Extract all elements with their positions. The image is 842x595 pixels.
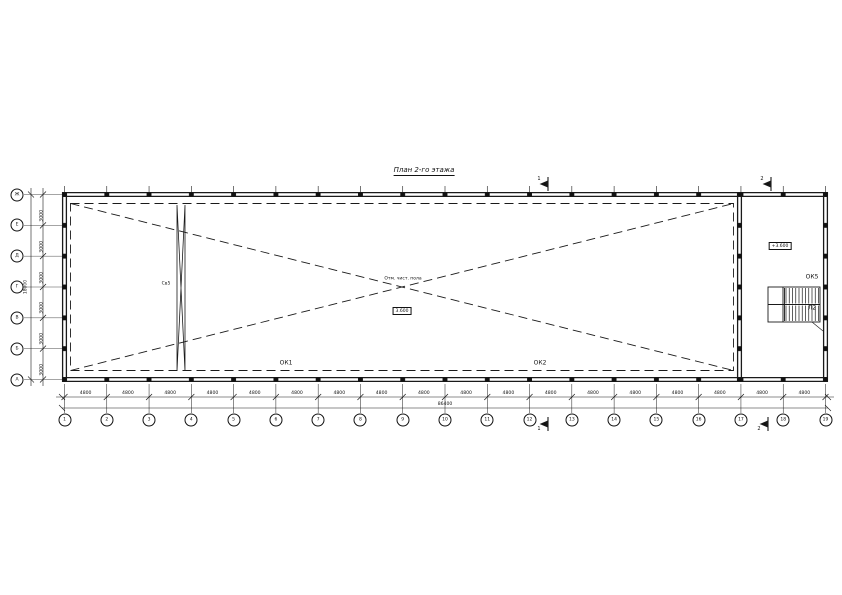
vertical-bracing bbox=[177, 205, 185, 371]
axis-bubble: А bbox=[11, 373, 24, 386]
floor-plan-sheet: План 2-го этажа ОК1 ОК2 ОК5 Л2 Св5 Отм. … bbox=[0, 0, 842, 595]
axis-bubble: 3 bbox=[143, 414, 156, 427]
axis-bubble: 5 bbox=[227, 414, 240, 427]
section-2-bottom-label: 2 bbox=[757, 426, 760, 432]
column-mark bbox=[654, 192, 658, 196]
column-mark bbox=[189, 192, 193, 196]
axis-bubble: Ж bbox=[11, 188, 24, 201]
center-note: Отм. чист. пола bbox=[384, 277, 421, 282]
bay-dim-label: 4800 bbox=[587, 391, 599, 396]
bay-dim-label: 4800 bbox=[418, 391, 430, 396]
column-mark bbox=[485, 192, 489, 196]
bay-dim-label: 4800 bbox=[80, 391, 92, 396]
bay-dim-label: 4800 bbox=[122, 391, 134, 396]
column-mark bbox=[737, 285, 741, 289]
bay-dim-label: 3000 bbox=[40, 364, 45, 376]
axis-bubble: 9 bbox=[396, 414, 409, 427]
axis-bubble: Г bbox=[11, 281, 24, 294]
bay-dim-label: 4800 bbox=[799, 391, 811, 396]
column-mark bbox=[316, 377, 320, 381]
column-mark bbox=[485, 377, 489, 381]
column-mark bbox=[316, 192, 320, 196]
column-mark bbox=[823, 316, 827, 320]
bay-dim-label: 4800 bbox=[756, 391, 768, 396]
column-mark bbox=[654, 377, 658, 381]
column-mark bbox=[696, 377, 700, 381]
axis-bubble: 17 bbox=[734, 414, 747, 427]
bay-dim-label: 3000 bbox=[40, 272, 45, 284]
stair-level-mark: +3.600 bbox=[769, 242, 792, 250]
column-mark bbox=[443, 192, 447, 196]
section-1-top-label: 1 bbox=[537, 176, 540, 182]
generated-linework bbox=[24, 186, 829, 413]
axis-bubble: 1 bbox=[58, 414, 71, 427]
column-mark bbox=[189, 377, 193, 381]
axis-bubble: 18 bbox=[777, 414, 790, 427]
axis-bubble: 4 bbox=[185, 414, 198, 427]
column-mark bbox=[443, 377, 447, 381]
column-mark bbox=[62, 377, 66, 381]
column-mark bbox=[527, 377, 531, 381]
section-marks bbox=[541, 177, 771, 431]
column-mark bbox=[737, 192, 741, 196]
axis-bubble: В bbox=[11, 311, 24, 324]
column-mark bbox=[570, 192, 574, 196]
column-mark bbox=[274, 377, 278, 381]
bay-dim-label: 4800 bbox=[164, 391, 176, 396]
column-mark bbox=[62, 346, 66, 350]
column-mark bbox=[570, 377, 574, 381]
column-mark bbox=[612, 192, 616, 196]
bay-dim-label: 4800 bbox=[545, 391, 557, 396]
axis-bubble: 10 bbox=[439, 414, 452, 427]
column-mark bbox=[823, 346, 827, 350]
stair-label: Л2 bbox=[808, 305, 816, 312]
column-mark bbox=[105, 377, 109, 381]
column-mark bbox=[147, 377, 151, 381]
bay-dim-label: 3000 bbox=[40, 241, 45, 253]
column-mark bbox=[62, 254, 66, 258]
column-mark bbox=[62, 316, 66, 320]
axis-bubble: 19 bbox=[819, 414, 832, 427]
column-mark bbox=[231, 192, 235, 196]
column-mark bbox=[274, 192, 278, 196]
section-1-bottom-label: 1 bbox=[537, 426, 540, 432]
bay-dim-label: 4800 bbox=[629, 391, 641, 396]
bay-dim-label: 4800 bbox=[460, 391, 472, 396]
bay-dim-label: 4800 bbox=[291, 391, 303, 396]
bay-dim-label: 3000 bbox=[40, 333, 45, 345]
bay-dim-label: 4800 bbox=[249, 391, 261, 396]
column-mark bbox=[737, 346, 741, 350]
total-dim-bottom: 86400 bbox=[438, 402, 453, 407]
bay-dim-label: 4800 bbox=[207, 391, 219, 396]
column-mark bbox=[823, 285, 827, 289]
opening-dashed-outline bbox=[71, 204, 734, 371]
axis-bubble: 7 bbox=[312, 414, 325, 427]
axis-bubble: Д bbox=[11, 250, 24, 263]
axis-bubble: Б bbox=[11, 342, 24, 355]
axis-bubble: 6 bbox=[269, 414, 282, 427]
column-mark bbox=[781, 192, 785, 196]
column-mark bbox=[401, 377, 405, 381]
bay-dim-label: 3000 bbox=[40, 210, 45, 222]
column-mark bbox=[62, 192, 66, 196]
column-mark bbox=[823, 254, 827, 258]
column-mark bbox=[737, 316, 741, 320]
bracing-label: Св5 bbox=[162, 282, 171, 287]
column-mark bbox=[781, 377, 785, 381]
axis-bubble: 15 bbox=[650, 414, 663, 427]
column-mark bbox=[231, 377, 235, 381]
window-label-ok2: ОК2 bbox=[534, 360, 547, 367]
axis-bubble: 8 bbox=[354, 414, 367, 427]
bay-dim-label: 4800 bbox=[714, 391, 726, 396]
bay-dim-label: 4800 bbox=[376, 391, 388, 396]
column-mark bbox=[527, 192, 531, 196]
column-mark bbox=[823, 192, 827, 196]
total-dim-left: 18000 bbox=[24, 280, 29, 294]
section-2-top-label: 2 bbox=[760, 176, 763, 182]
column-mark bbox=[105, 192, 109, 196]
bay-dim-label: 4800 bbox=[333, 391, 345, 396]
bay-dim-label: 4800 bbox=[672, 391, 684, 396]
column-mark bbox=[737, 254, 741, 258]
column-mark bbox=[62, 223, 66, 227]
drawing-title: План 2-го этажа bbox=[394, 166, 455, 176]
column-mark bbox=[147, 192, 151, 196]
axis-bubble: 16 bbox=[692, 414, 705, 427]
column-mark bbox=[823, 223, 827, 227]
center-level-mark: 3.600 bbox=[393, 307, 412, 315]
bay-dim-label: 3000 bbox=[40, 302, 45, 314]
column-mark bbox=[737, 223, 741, 227]
column-mark bbox=[62, 285, 66, 289]
column-mark bbox=[823, 377, 827, 381]
axis-bubble: 11 bbox=[481, 414, 494, 427]
column-mark bbox=[358, 377, 362, 381]
column-mark bbox=[358, 192, 362, 196]
bay-dim-label: 4800 bbox=[503, 391, 515, 396]
axis-bubble: 13 bbox=[565, 414, 578, 427]
axis-bubble: 14 bbox=[608, 414, 621, 427]
axis-bubble: Е bbox=[11, 219, 24, 232]
column-mark bbox=[737, 377, 741, 381]
column-mark bbox=[696, 192, 700, 196]
column-mark bbox=[401, 192, 405, 196]
axis-bubble: 2 bbox=[100, 414, 113, 427]
axis-bubble: 12 bbox=[523, 414, 536, 427]
window-label-ok1: ОК1 bbox=[280, 360, 293, 367]
window-label-ok5: ОК5 bbox=[806, 274, 819, 281]
column-mark bbox=[612, 377, 616, 381]
plan-linework bbox=[0, 0, 842, 595]
